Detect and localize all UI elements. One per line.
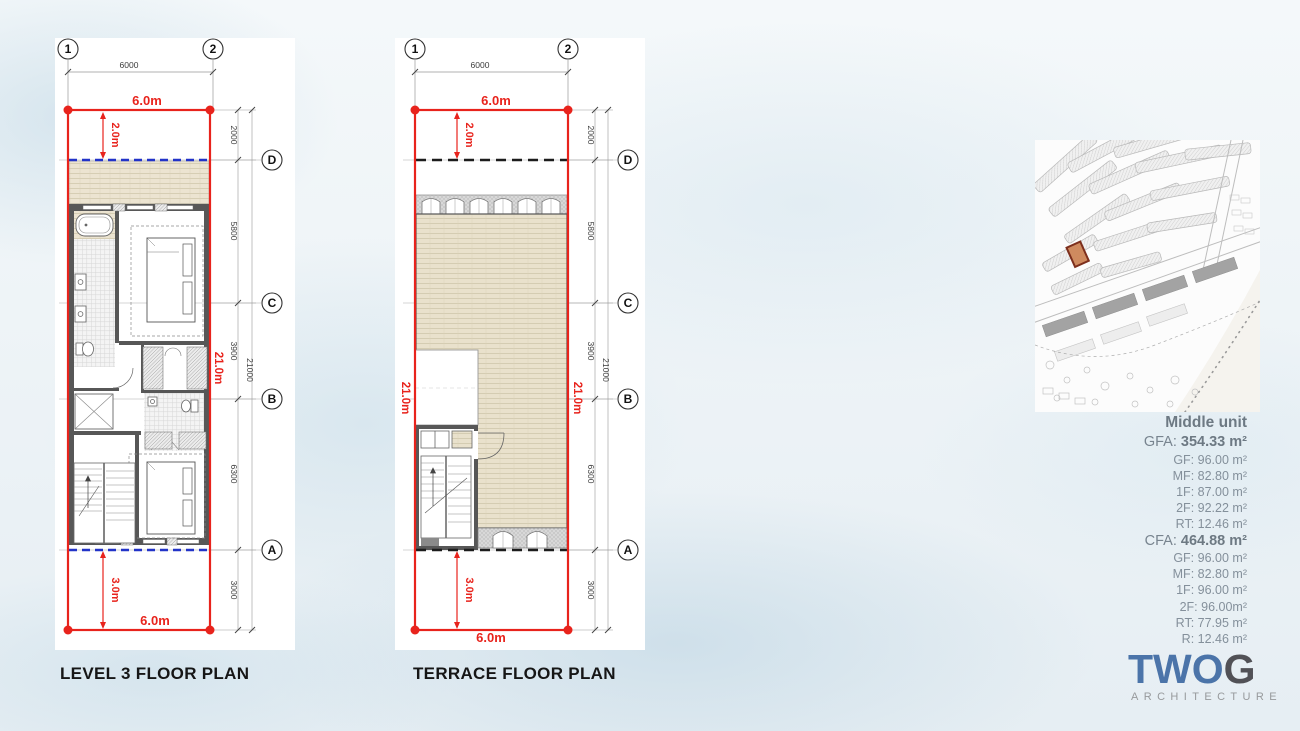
row-label: 2F: [1176,501,1194,515]
svg-text:3900: 3900 [586,342,596,361]
dim-total-label: 21000 [245,358,255,382]
svg-text:C: C [268,296,277,310]
bathtub-icon [76,214,113,236]
cfa-label: CFA: [1145,533,1177,549]
row-label: 1F: [1176,583,1194,597]
stairs-icon [421,456,471,546]
row-value: 82.80 m² [1198,567,1247,581]
svg-text:3900: 3900 [229,342,239,361]
svg-text:1: 1 [65,42,72,56]
cfa-value: 464.88 m² [1181,533,1247,549]
level3-floor-plan-drawing: 6000 [55,38,295,650]
row-label: 1F: [1176,485,1194,499]
cfa-row: R: 12.46 m² [1144,631,1247,647]
logo-subtitle: ARCHITECTURE [1131,691,1282,703]
gfa-total-row: GFA: 354.33 m² [1144,434,1247,452]
level3-floor-plan-panel: 6000 [55,38,295,650]
row-value: 87.00 m² [1198,485,1247,499]
svg-text:5800: 5800 [586,222,596,241]
svg-text:2.0m: 2.0m [109,122,121,147]
svg-text:2: 2 [565,42,572,56]
svg-text:C: C [624,296,633,310]
roof-bulkhead [415,350,478,425]
site-location-map [1035,140,1260,412]
svg-text:2000: 2000 [586,126,596,145]
row-label: RT: [1176,616,1195,630]
svg-text:6.0m: 6.0m [132,93,162,108]
row-label: GF: [1173,453,1194,467]
row-label: 2F: [1180,600,1198,614]
svg-text:6300: 6300 [586,465,596,484]
row-label: RT: [1176,517,1195,531]
row-value: 96.00m² [1201,600,1247,614]
svg-text:6300: 6300 [229,465,239,484]
row-value: 82.80 m² [1198,469,1247,483]
door-opening [474,431,478,459]
gfa-value: 354.33 m² [1181,434,1247,450]
cfa-row: 2F: 96.00m² [1144,599,1247,615]
gfa-row: 2F: 92.22 m² [1144,500,1247,516]
svg-text:21.0m: 21.0m [212,352,224,385]
site-map-drawing [1035,140,1260,412]
row-label: MF: [1173,469,1195,483]
svg-text:A: A [268,543,277,557]
logo-two: TWO [1128,646,1224,692]
row-value: 96.00 m² [1198,583,1247,597]
svg-text:D: D [268,153,277,167]
svg-text:3.0m: 3.0m [109,577,121,602]
svg-text:1: 1 [412,42,419,56]
logo-wordmark: TWOG [1128,648,1282,690]
svg-text:D: D [624,153,633,167]
svg-text:21.0m: 21.0m [399,382,411,415]
wardrobe-icon [421,431,472,448]
svg-text:3000: 3000 [229,581,239,600]
cfa-row: GF: 96.00 m² [1144,550,1247,566]
svg-text:21.0m: 21.0m [571,382,583,415]
planter-strip-top [416,195,567,214]
dim-segment-labels: 2000 5800 3900 6300 3000 21000 [229,126,255,600]
terrace-floor-plan-panel: 6000 [395,38,645,650]
row-label: GF: [1173,551,1194,565]
dim-width-label: 6000 [120,60,139,70]
svg-text:B: B [624,392,633,406]
terrace-floor-plan-drawing: 6000 [395,38,645,650]
gfa-row: MF: 82.80 m² [1144,468,1247,484]
svg-text:2.0m: 2.0m [463,122,475,147]
row-label: MF: [1173,567,1195,581]
cfa-row: 1F: 96.00 m² [1144,582,1247,598]
svg-text:5800: 5800 [229,222,239,241]
presentation-slide: { "titles": { "plan1": "LEVEL 3 FLOOR PL… [0,0,1300,731]
door-arc [113,368,133,388]
terrace-plan-title: TERRACE FLOOR PLAN [413,664,616,684]
row-value: 96.00 m² [1198,453,1247,467]
dim-segment-labels: 2000 5800 3900 6300 3000 21000 [586,126,611,600]
dim-total-label: 21000 [601,358,611,382]
dim-width-label: 6000 [471,60,490,70]
gfa-label: GFA: [1144,434,1177,450]
planter-strip-bottom [478,528,567,548]
row-value: 96.00 m² [1198,551,1247,565]
svg-text:6.0m: 6.0m [476,630,506,645]
row-value: 12.46 m² [1198,632,1247,646]
gfa-row: GF: 96.00 m² [1144,452,1247,468]
bedroom2 [129,432,206,538]
toilet-icon [76,342,94,356]
cfa-row: MF: 82.80 m² [1144,566,1247,582]
row-value: 12.46 m² [1198,517,1247,531]
svg-text:6.0m: 6.0m [140,613,170,628]
stairs-icon [74,463,135,543]
cfa-total-row: CFA: 464.88 m² [1144,533,1247,551]
elevator-icon [75,394,113,429]
svg-text:2: 2 [210,42,217,56]
logo-g: G [1224,646,1256,692]
level3-plan-title: LEVEL 3 FLOOR PLAN [60,664,249,684]
balcony-deck [69,161,209,204]
cfa-row: RT: 77.95 m² [1144,615,1247,631]
twog-architecture-logo: TWOG ARCHITECTURE [1128,648,1282,703]
gfa-row: 1F: 87.00 m² [1144,484,1247,500]
unit-stats-title: Middle unit [1144,414,1247,432]
master-bedroom [131,226,203,336]
svg-text:3000: 3000 [586,581,596,600]
wardrobe-icons [143,347,207,389]
svg-text:3.0m: 3.0m [463,577,475,602]
gfa-row: RT: 12.46 m² [1144,516,1247,532]
svg-text:A: A [624,543,633,557]
svg-text:2000: 2000 [229,126,239,145]
row-value: 92.22 m² [1198,501,1247,515]
row-value: 77.95 m² [1198,616,1247,630]
unit-stats: Middle unit GFA: 354.33 m² GF: 96.00 m² … [1144,414,1247,647]
row-label: R: [1182,632,1195,646]
svg-text:B: B [268,392,277,406]
svg-text:6.0m: 6.0m [481,93,511,108]
